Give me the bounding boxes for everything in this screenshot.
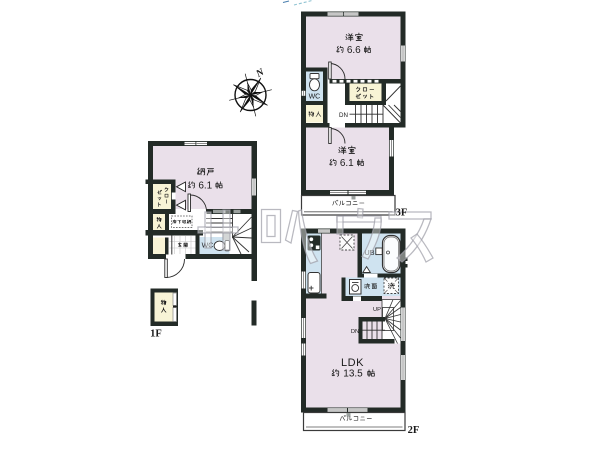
svg-text:1F: 1F [150, 329, 162, 340]
svg-text:LDK: LDK [341, 357, 364, 369]
svg-text:3F: 3F [396, 208, 408, 219]
svg-text:6.1: 6.1 [198, 180, 212, 191]
svg-text:DN: DN [339, 112, 348, 119]
svg-text:13.5: 13.5 [343, 369, 363, 380]
svg-text:6.6: 6.6 [347, 45, 361, 56]
svg-text:UP: UP [373, 307, 381, 313]
svg-text:2F: 2F [408, 425, 420, 436]
svg-text:6.1: 6.1 [340, 158, 354, 169]
svg-text:DN: DN [351, 329, 359, 335]
svg-text:WC: WC [309, 94, 321, 101]
